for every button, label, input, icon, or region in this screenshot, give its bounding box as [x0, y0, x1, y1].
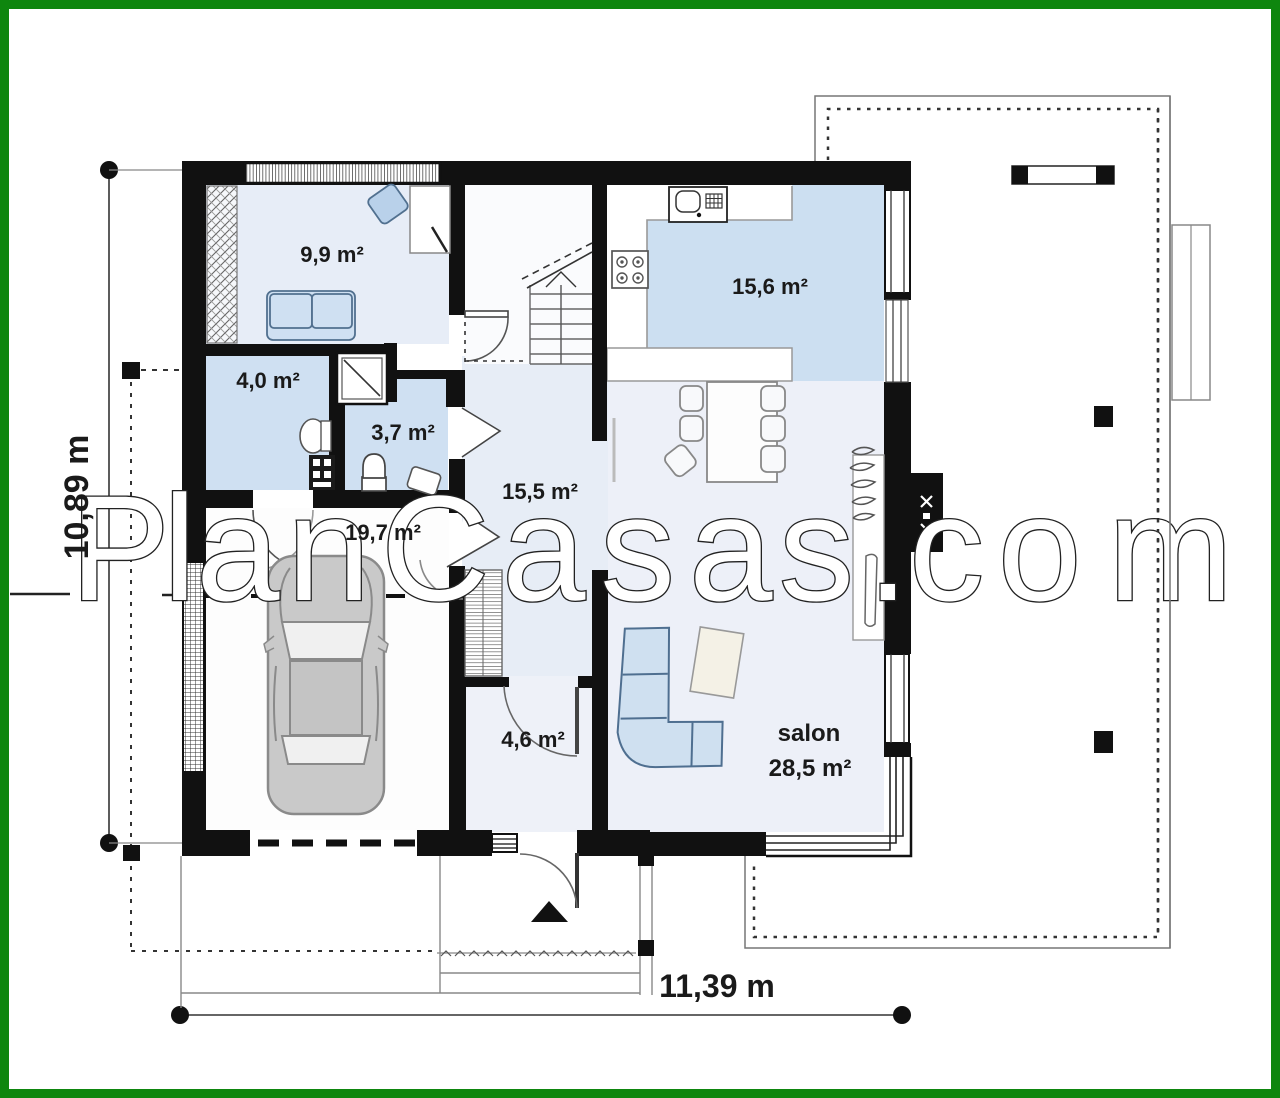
svg-text:28,5 m²: 28,5 m²: [769, 755, 852, 782]
svg-text:4,0 m²: 4,0 m²: [236, 368, 300, 393]
svg-text:15,5 m²: 15,5 m²: [502, 479, 578, 504]
svg-text:PlanCasas.com: PlanCasas.com: [70, 464, 1233, 632]
svg-text:9,9 m²: 9,9 m²: [300, 242, 364, 267]
svg-text:salon: salon: [778, 720, 841, 747]
svg-text:11,39 m: 11,39 m: [659, 968, 775, 1004]
svg-text:3,7 m²: 3,7 m²: [371, 420, 435, 445]
svg-text:15,6 m²: 15,6 m²: [732, 274, 808, 299]
svg-text:4,6 m²: 4,6 m²: [501, 727, 565, 752]
svg-text:10,89 m: 10,89 m: [58, 435, 96, 560]
svg-text:19,7 m²: 19,7 m²: [345, 520, 421, 545]
